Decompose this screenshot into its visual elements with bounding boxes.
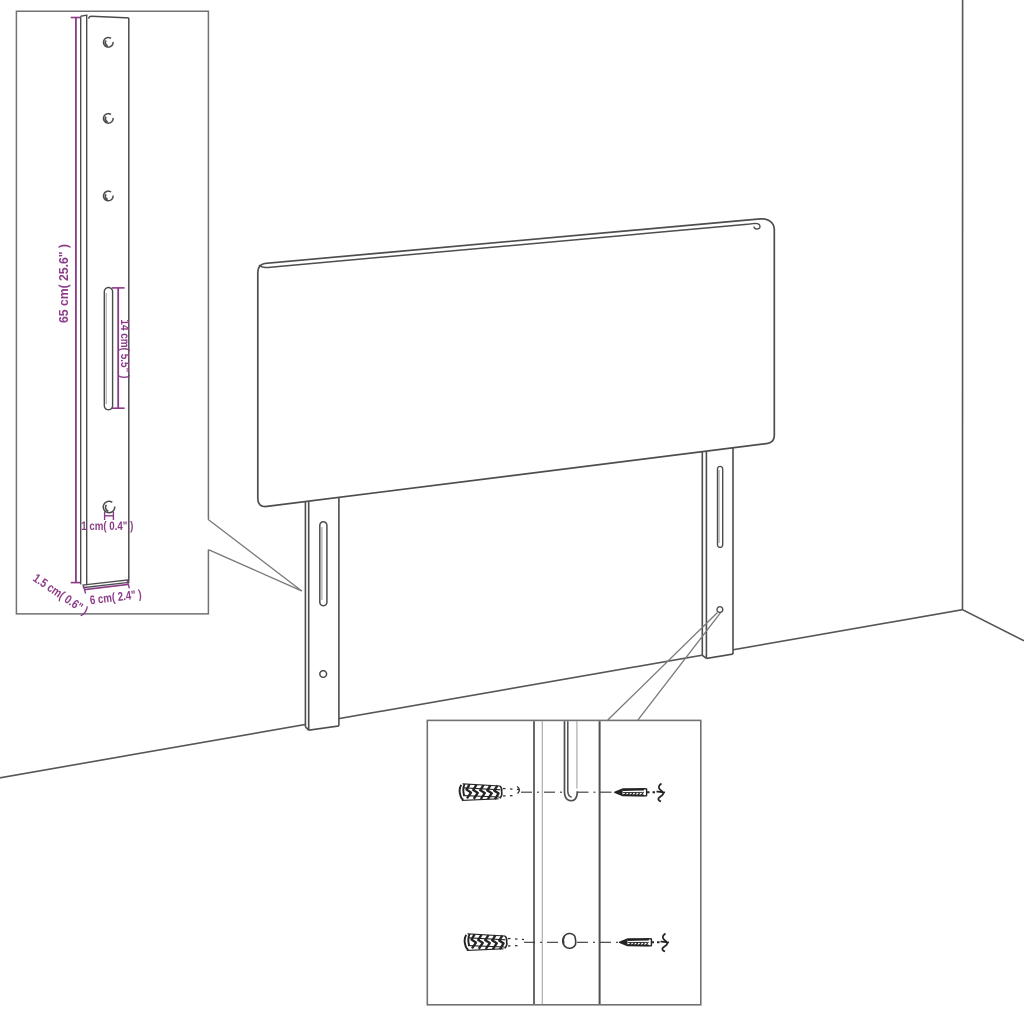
svg-text:14 cm( 5.5" ): 14 cm( 5.5" ): [118, 319, 132, 378]
svg-text:65 cm( 25.6" ): 65 cm( 25.6" ): [56, 244, 71, 323]
svg-text:1 cm( 0.4" ): 1 cm( 0.4" ): [81, 519, 133, 533]
